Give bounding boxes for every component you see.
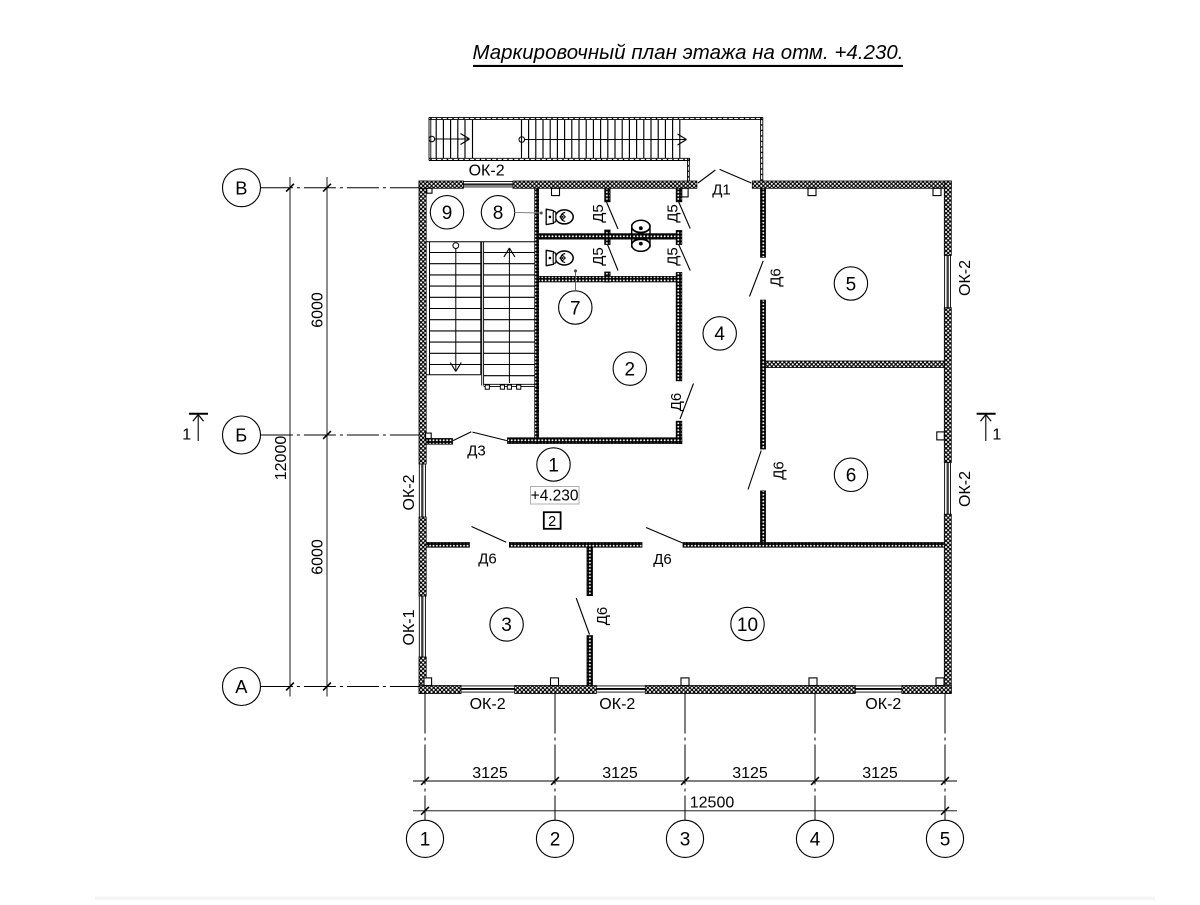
svg-text:4: 4 — [810, 830, 821, 851]
svg-text:Д5: Д5 — [665, 247, 682, 266]
svg-text:8: 8 — [493, 203, 504, 224]
svg-text:В: В — [235, 177, 247, 198]
svg-text:3125: 3125 — [472, 765, 508, 782]
svg-text:10: 10 — [737, 615, 758, 636]
svg-text:Б: Б — [235, 425, 247, 446]
svg-text:ОК-2: ОК-2 — [470, 696, 506, 713]
svg-text:ОК-2: ОК-2 — [957, 260, 974, 296]
svg-text:Д6: Д6 — [594, 607, 611, 626]
svg-text:Д3: Д3 — [467, 443, 486, 460]
svg-text:7: 7 — [570, 298, 581, 319]
svg-text:ОК-2: ОК-2 — [469, 162, 505, 179]
svg-text:Д5: Д5 — [590, 247, 607, 266]
svg-text:Д6: Д6 — [771, 461, 788, 480]
svg-text:ОК-2: ОК-2 — [401, 474, 418, 510]
svg-text:3125: 3125 — [862, 765, 898, 782]
svg-text:ОК-2: ОК-2 — [599, 696, 635, 713]
svg-text:1: 1 — [420, 830, 431, 851]
svg-text:2: 2 — [625, 359, 636, 380]
svg-text:Д1: Д1 — [712, 182, 731, 199]
svg-text:6: 6 — [846, 466, 857, 487]
svg-text:Д5: Д5 — [665, 204, 682, 223]
svg-text:5: 5 — [846, 274, 857, 295]
svg-text:ОК-2: ОК-2 — [865, 696, 901, 713]
svg-text:+4.230: +4.230 — [531, 487, 579, 504]
svg-text:Д6: Д6 — [478, 551, 497, 568]
svg-text:2: 2 — [548, 514, 556, 530]
svg-text:Д6: Д6 — [668, 393, 685, 412]
svg-text:1: 1 — [548, 455, 559, 476]
svg-text:Д6: Д6 — [653, 551, 672, 568]
svg-text:12000: 12000 — [273, 436, 290, 481]
svg-text:6000: 6000 — [310, 539, 327, 575]
svg-text:2: 2 — [550, 830, 561, 851]
svg-text:3125: 3125 — [732, 765, 768, 782]
svg-text:1: 1 — [182, 427, 191, 444]
svg-text:3: 3 — [501, 615, 512, 636]
svg-text:5: 5 — [940, 830, 951, 851]
svg-text:ОК-2: ОК-2 — [957, 471, 974, 507]
svg-text:1: 1 — [992, 427, 1001, 444]
svg-text:Д5: Д5 — [590, 204, 607, 223]
svg-text:12500: 12500 — [690, 795, 735, 812]
svg-text:Д6: Д6 — [768, 268, 785, 287]
svg-text:9: 9 — [442, 203, 453, 224]
svg-text:6000: 6000 — [310, 292, 327, 328]
svg-text:4: 4 — [714, 324, 725, 345]
svg-text:ОК-1: ОК-1 — [401, 609, 418, 645]
svg-text:3: 3 — [680, 830, 691, 851]
svg-text:А: А — [235, 676, 248, 697]
svg-text:Маркировочный план этажа на от: Маркировочный план этажа на отм. +4.230. — [472, 42, 903, 64]
svg-text:3125: 3125 — [602, 765, 638, 782]
